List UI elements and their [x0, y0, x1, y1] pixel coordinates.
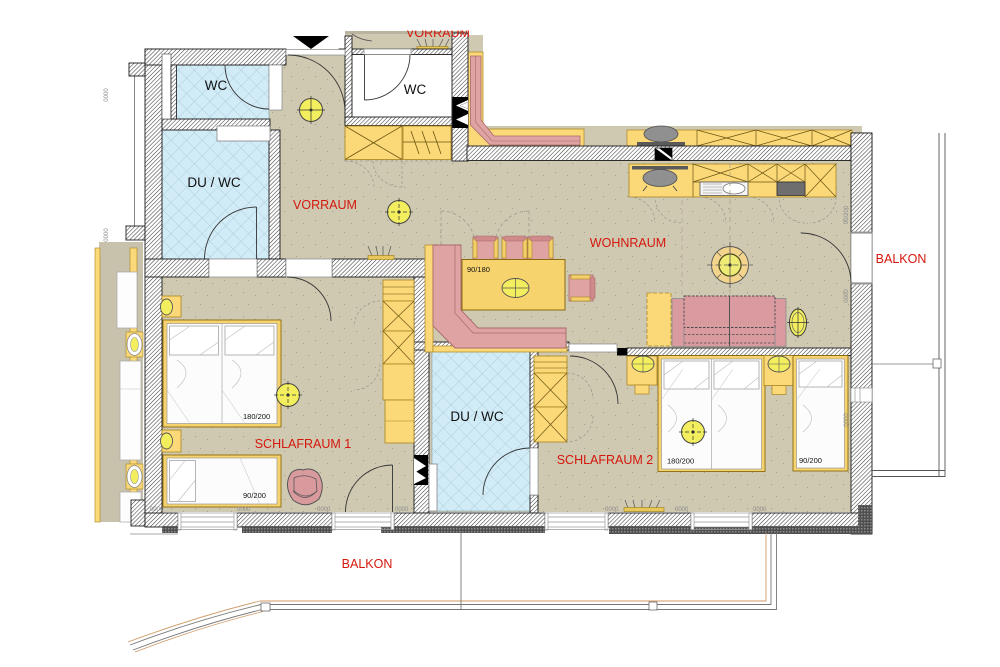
- svg-text:DU / WC: DU / WC: [450, 409, 503, 424]
- svg-text:0000: 0000: [237, 507, 251, 513]
- svg-text:BALKON: BALKON: [342, 557, 393, 571]
- svg-text:0000: 0000: [104, 88, 110, 102]
- svg-text:SCHLAFRAUM 2: SCHLAFRAUM 2: [557, 453, 654, 467]
- svg-text:90/200: 90/200: [243, 491, 266, 500]
- svg-text:180/200: 180/200: [243, 412, 270, 421]
- svg-text:180/200: 180/200: [667, 457, 694, 466]
- svg-text:0000: 0000: [675, 507, 689, 513]
- svg-text:90/200: 90/200: [844, 205, 850, 224]
- svg-text:90/200: 90/200: [799, 456, 822, 465]
- svg-text:0000: 0000: [605, 507, 619, 513]
- svg-text:0000: 0000: [104, 228, 110, 242]
- svg-text:WC: WC: [205, 78, 228, 93]
- svg-text:0000: 0000: [317, 507, 331, 513]
- svg-text:WC: WC: [404, 82, 427, 97]
- svg-text:90/180: 90/180: [467, 265, 490, 274]
- svg-text:0000: 0000: [844, 289, 850, 303]
- svg-text:BALKON: BALKON: [876, 252, 927, 266]
- svg-text:0000: 0000: [150, 507, 164, 513]
- svg-text:0000: 0000: [844, 413, 850, 427]
- svg-text:WOHNRAUM: WOHNRAUM: [590, 236, 666, 250]
- svg-text:VORRAUM: VORRAUM: [293, 198, 357, 212]
- svg-text:DU / WC: DU / WC: [187, 175, 240, 190]
- svg-text:SCHLAFRAUM 1: SCHLAFRAUM 1: [255, 437, 352, 451]
- svg-text:0000: 0000: [753, 507, 767, 513]
- svg-text:0000: 0000: [395, 507, 409, 513]
